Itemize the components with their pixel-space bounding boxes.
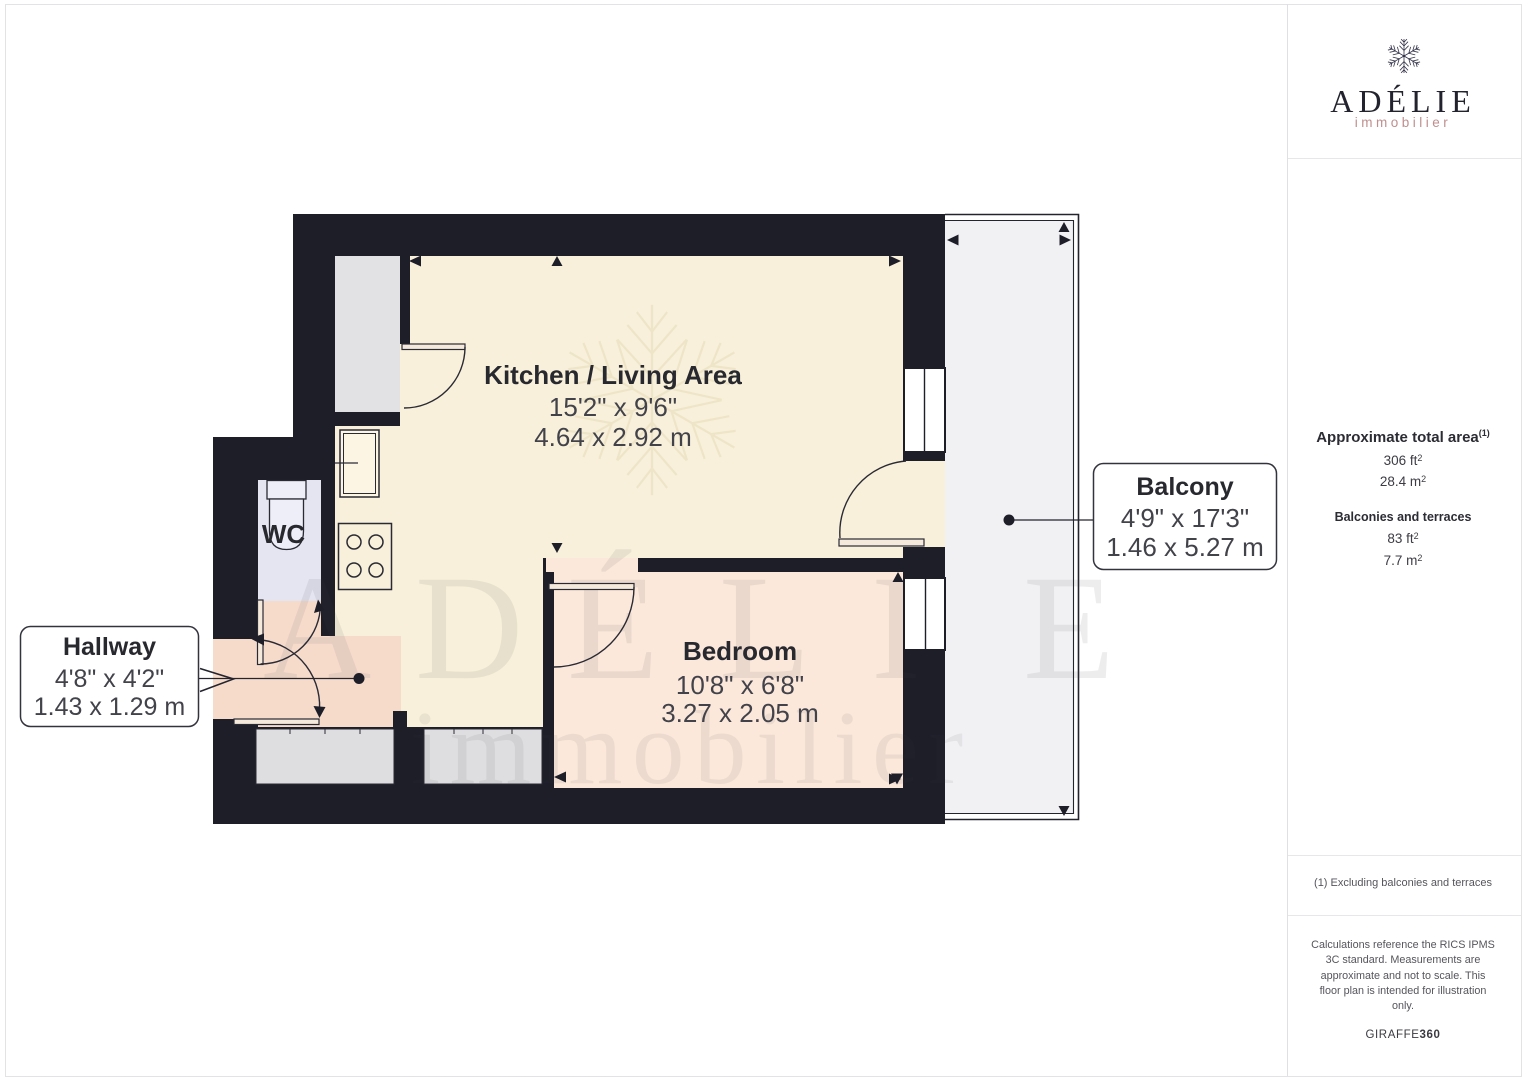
svg-text:Bedroom: Bedroom xyxy=(683,636,797,666)
svg-text:4'8" x 4'2": 4'8" x 4'2" xyxy=(55,665,164,693)
svg-text:15'2" x 9'6": 15'2" x 9'6" xyxy=(549,392,677,422)
svg-text:10'8" x 6'8": 10'8" x 6'8" xyxy=(676,670,804,700)
svg-text:4'9" x 17'3": 4'9" x 17'3" xyxy=(1121,503,1249,533)
svg-text:Balcony: Balcony xyxy=(1136,473,1233,501)
svg-text:1.43 x 1.29 m: 1.43 x 1.29 m xyxy=(34,693,185,721)
svg-text:D: D xyxy=(415,545,523,711)
svg-text:Kitchen / Living Area: Kitchen / Living Area xyxy=(484,360,742,390)
svg-text:É: É xyxy=(567,545,659,711)
svg-text:1.46 x 5.27 m: 1.46 x 5.27 m xyxy=(1106,532,1264,562)
svg-text:4.64 x 2.92 m: 4.64 x 2.92 m xyxy=(534,422,692,452)
svg-text:3.27 x 2.05 m: 3.27 x 2.05 m xyxy=(661,698,819,728)
svg-text:WC: WC xyxy=(262,519,306,549)
svg-text:Hallway: Hallway xyxy=(63,633,156,661)
